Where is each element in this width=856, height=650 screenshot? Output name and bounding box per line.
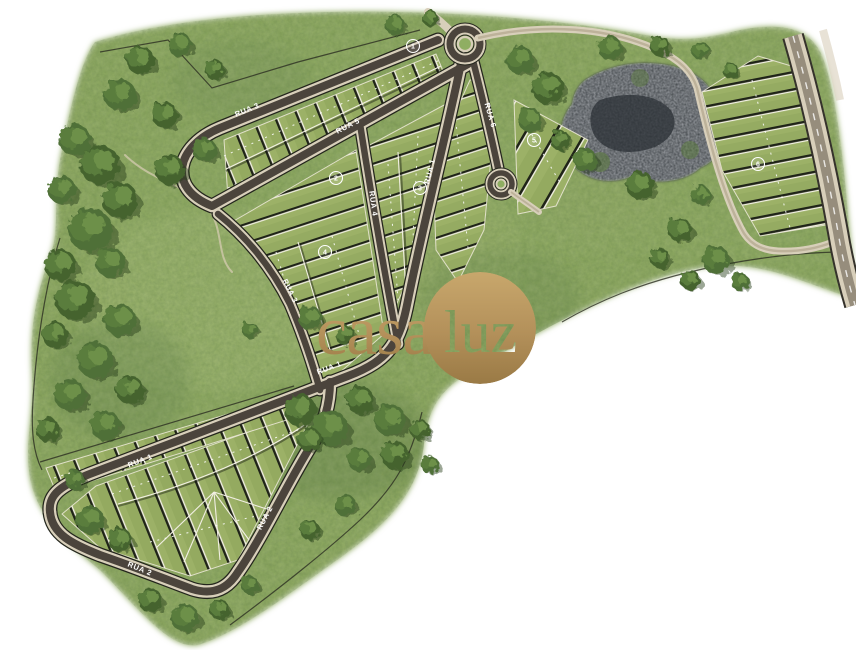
quadra-marker-3: 3 [414, 182, 427, 195]
logo-gold-circle [424, 272, 536, 384]
quadra-marker-6: 6 [752, 158, 765, 171]
quadra-marker-2: 2 [330, 172, 343, 185]
site-plan-page: luz [0, 0, 856, 650]
svg-text:1: 1 [411, 44, 415, 51]
site-plan-map: luz [0, 0, 856, 650]
svg-text:2: 2 [334, 176, 338, 183]
svg-text:4: 4 [323, 250, 327, 257]
svg-text:3: 3 [418, 186, 422, 193]
logo-casa-text: casa [316, 293, 433, 370]
tree-clump [421, 456, 442, 475]
svg-text:6: 6 [756, 162, 760, 169]
tree-clump [731, 273, 752, 292]
quadra-marker-4: 4 [319, 246, 332, 259]
svg-text:5: 5 [532, 138, 536, 145]
quadra-marker-1: 1 [407, 40, 420, 53]
quadra-marker-5: 5 [528, 134, 541, 147]
tree-clump [680, 270, 703, 291]
roundabout-main [450, 29, 480, 59]
